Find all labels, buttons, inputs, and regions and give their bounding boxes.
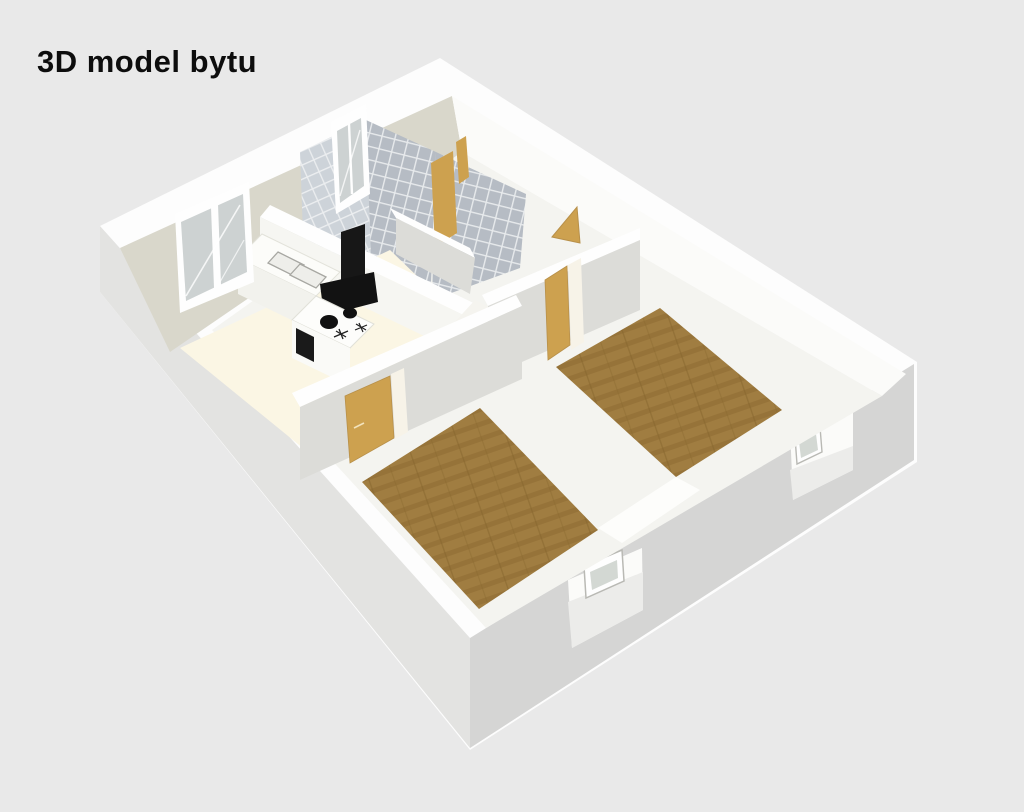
burner-1 bbox=[320, 315, 338, 329]
bedroom-2-door bbox=[545, 266, 570, 360]
page-title: 3D model bytu bbox=[37, 44, 257, 79]
burner-2 bbox=[343, 308, 357, 319]
apartment-3d-view: 3D model bytu bbox=[0, 0, 1024, 812]
screenshot-root: 3D model bytu bbox=[0, 0, 1024, 812]
